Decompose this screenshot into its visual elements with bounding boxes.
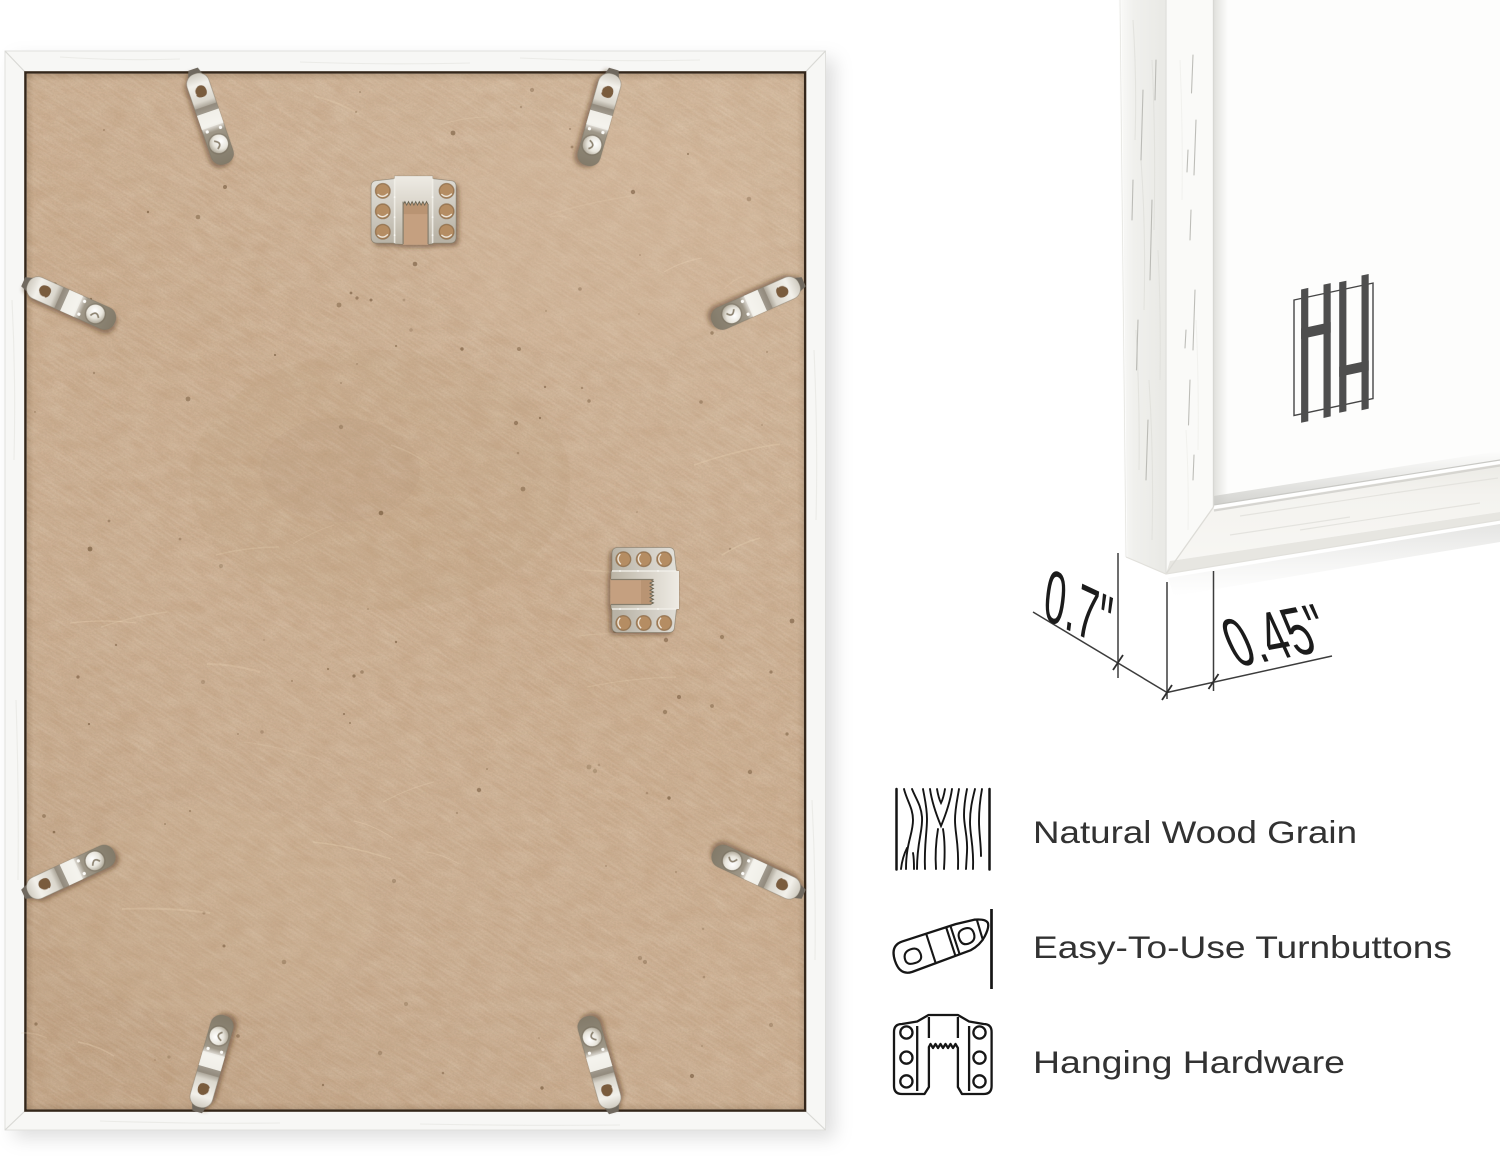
svg-text:0.45": 0.45": [1210, 589, 1342, 682]
svg-text:Hanging Hardware: Hanging Hardware: [1033, 1044, 1345, 1080]
svg-text:Easy-To-Use Turnbuttons: Easy-To-Use Turnbuttons: [1033, 929, 1452, 965]
svg-text:Natural Wood Grain: Natural Wood Grain: [1033, 814, 1357, 850]
svg-text:0.7": 0.7": [1040, 552, 1117, 665]
